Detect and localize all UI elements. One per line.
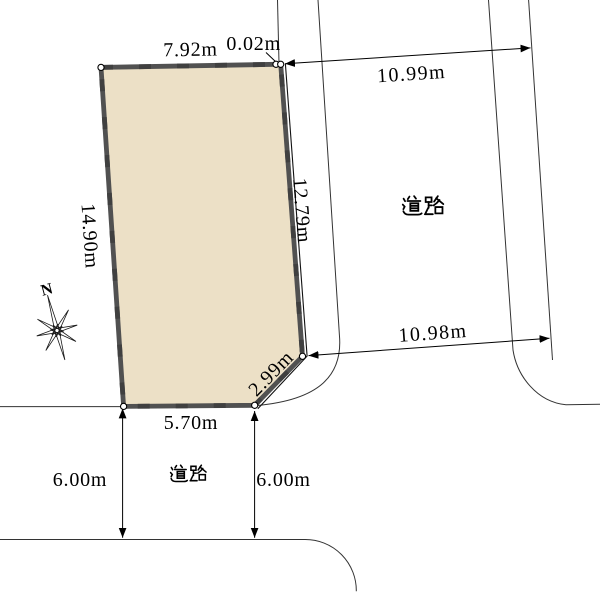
- svg-text:6.00m: 6.00m: [53, 469, 108, 491]
- svg-text:6.00m: 6.00m: [256, 469, 311, 491]
- svg-text:N: N: [39, 280, 55, 300]
- svg-text:10.99m: 10.99m: [376, 61, 446, 87]
- svg-text:0.02m: 0.02m: [226, 33, 281, 55]
- svg-text:14.90m: 14.90m: [76, 203, 102, 270]
- svg-text:7.92m: 7.92m: [163, 38, 218, 61]
- svg-text:5.70m: 5.70m: [164, 412, 219, 434]
- svg-text:10.98m: 10.98m: [398, 320, 468, 347]
